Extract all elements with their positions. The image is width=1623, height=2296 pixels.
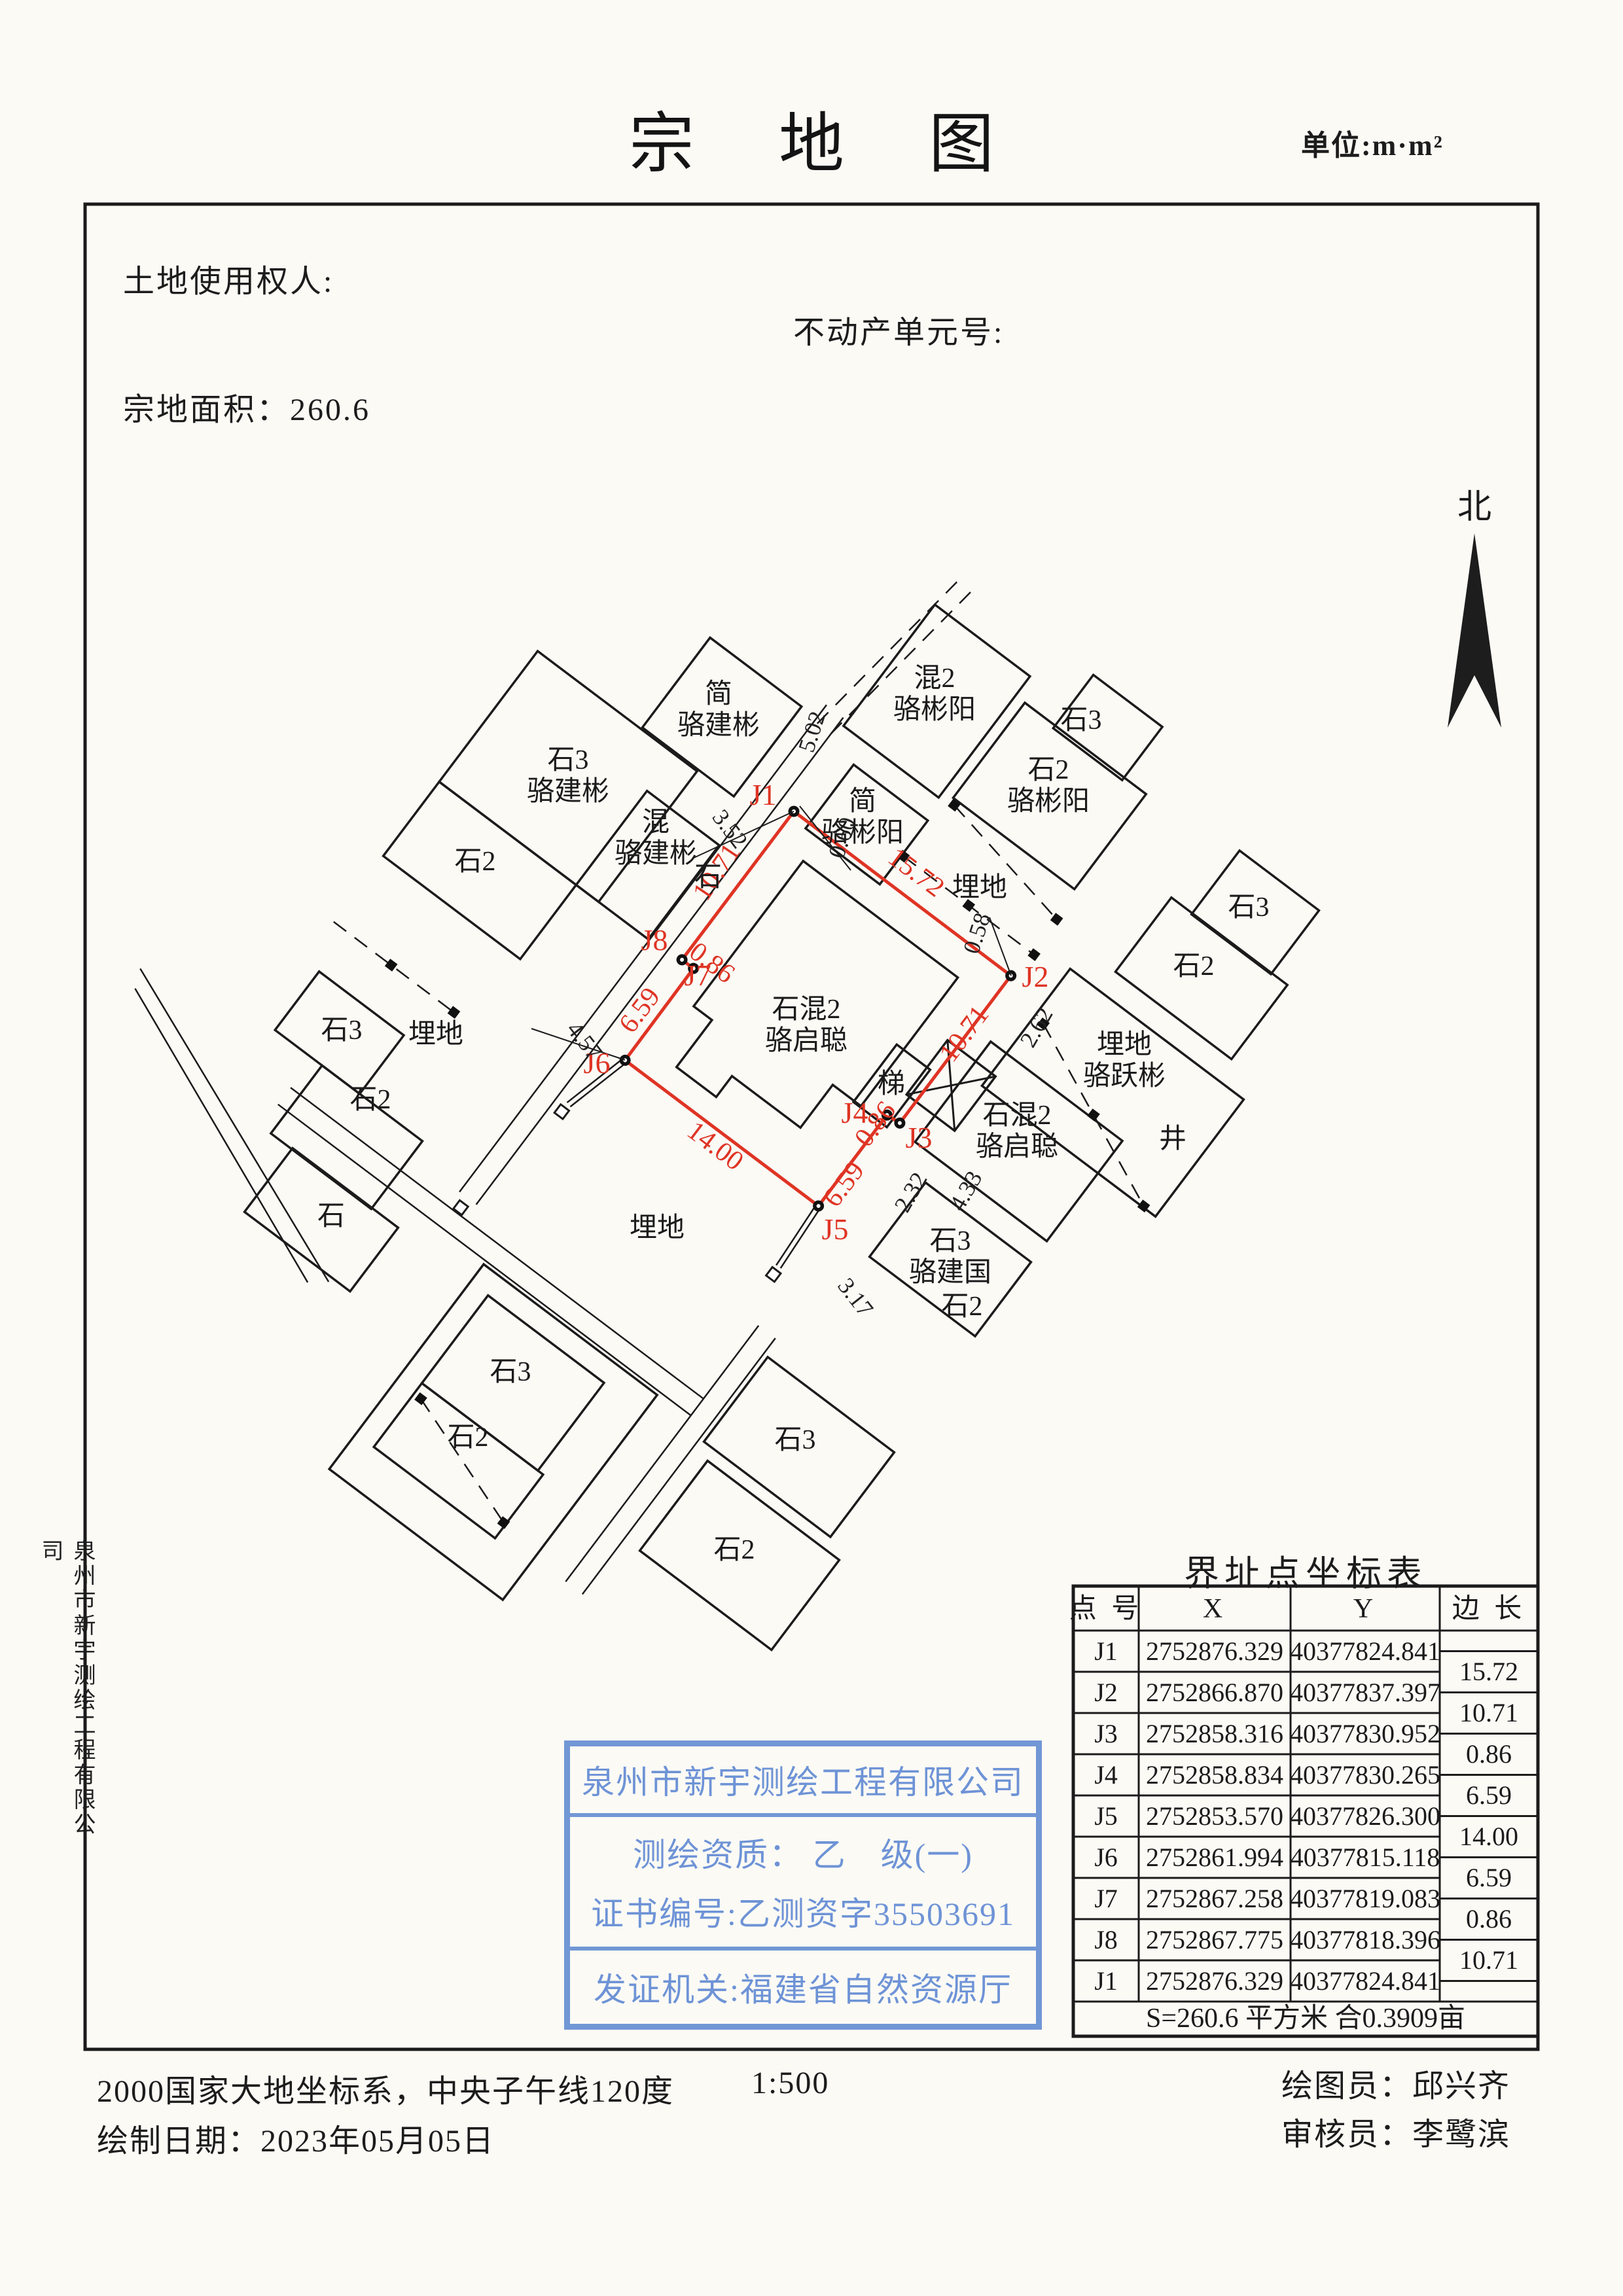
parcel-label: 石2 (454, 847, 495, 877)
table-edge-length: 6.59 (1466, 1863, 1512, 1892)
coordinate-table-title: 界址点坐标表 (1073, 1544, 1538, 1596)
stamp-band-3: 发证机关:福建省自然资源厅 (570, 1951, 1036, 2024)
building-outline (374, 1383, 543, 1538)
parcel-label: 石 (694, 862, 722, 892)
parcel-label: 石3 (490, 1357, 531, 1387)
crs-note: 2000国家大地坐标系，中央子午线120度 (97, 2065, 674, 2111)
stamp-company: 泉州市新宇测绘工程有限公司 (582, 1756, 1024, 1803)
parcel-map-sheet: 宗 地 图 单位:m·m² 土地使用权人: 不动产单元号: 宗地面积：260.6… (0, 0, 1623, 2296)
neighbour-dimension: 5.02 (793, 708, 831, 755)
table-x-value: 2752876.329 (1146, 1966, 1283, 1996)
table-x-value: 2752858.316 (1146, 1719, 1283, 1748)
surveyor-stamp: 泉州市新宇测绘工程有限公司 测绘资质： 乙 级(一) 证书编号:乙测资字3550… (564, 1740, 1042, 2030)
parcel-label: 石混2骆启聪 (765, 995, 847, 1056)
parcel-label: 井 (1159, 1124, 1186, 1154)
table-edge-length: 0.86 (1466, 1904, 1512, 1934)
parcel-label: 石3骆建国 (909, 1226, 991, 1288)
road-line (278, 1104, 691, 1415)
parcel-label: 石3 (1060, 705, 1101, 735)
parcel-label: 石2骆彬阳 (1007, 755, 1090, 817)
boundary-mark (414, 1392, 427, 1405)
parcel-label: 梯 (878, 1069, 905, 1099)
parcel-label: 石2 (447, 1422, 488, 1453)
boundary-mark (497, 1516, 510, 1529)
parcel-edge-length: 15.72 (882, 842, 950, 904)
survey-stone (766, 1267, 781, 1282)
table-y-value: 40377824.841 (1290, 1966, 1440, 1996)
neighbour-dimension: 2.32 (889, 1168, 933, 1217)
table-point-id: J2 (1094, 1678, 1118, 1707)
parcel-label: 石2 (941, 1292, 982, 1322)
parcel-label: 石 (317, 1201, 345, 1231)
parcel-label: 简骆彬阳 (821, 786, 904, 848)
north-arrow-icon (1448, 533, 1501, 728)
spur-line (777, 1207, 824, 1268)
table-y-value: 40377824.841 (1290, 1636, 1440, 1666)
parcel-label: 石2 (1173, 951, 1214, 981)
table-edge-length: 6.59 (1466, 1780, 1512, 1810)
parcel-label: 埋地骆跃彬 (1083, 1030, 1166, 1091)
table-header: 点 号 (1069, 1594, 1143, 1624)
parcel-edge-length: 14.00 (681, 1116, 749, 1177)
stamp-certificate-no: 证书编号:乙测资字35503691 (591, 1888, 1015, 1935)
parcel-label: 埋地 (408, 1019, 463, 1050)
table-x-value: 2752866.870 (1146, 1678, 1283, 1707)
table-x-value: 2752858.834 (1146, 1760, 1283, 1790)
table-header: Y (1353, 1594, 1377, 1624)
table-y-value: 40377830.265 (1290, 1760, 1440, 1790)
map-scale: 1:500 (751, 2065, 829, 2101)
parcel-edge-length: 6.59 (613, 982, 666, 1038)
stamp-band-1: 泉州市新宇测绘工程有限公司 (570, 1746, 1036, 1817)
table-y-value: 40377837.397 (1290, 1678, 1440, 1707)
boundary-mark (1087, 1108, 1100, 1122)
table-header: X (1203, 1594, 1226, 1624)
table-y-value: 40377830.952 (1290, 1719, 1440, 1748)
parcel-label: 石混2骆启聪 (976, 1101, 1058, 1162)
stamp-band-2: 测绘资质： 乙 级(一) 证书编号:乙测资字35503691 (570, 1817, 1036, 1951)
table-point-id: J1 (1094, 1636, 1118, 1666)
table-x-value: 2752867.775 (1146, 1925, 1283, 1954)
stamp-qualification: 测绘资质： 乙 级(一) (633, 1829, 973, 1876)
table-x-value: 2752876.329 (1146, 1636, 1283, 1666)
table-x-value: 2752867.258 (1146, 1884, 1283, 1913)
draw-date: 绘制日期：2023年05月05日 (97, 2115, 495, 2161)
table-edge-length: 10.71 (1459, 1945, 1518, 1975)
table-area-summary: S=260.6 平方米 合0.3909亩 (1146, 2003, 1465, 2034)
neighbour-dimension: 0.58 (958, 910, 996, 957)
boundary-point-label: J1 (750, 778, 777, 811)
drafter: 绘图员：邱兴齐 (1281, 2060, 1510, 2106)
spur-line (772, 1205, 819, 1265)
parcel-label: 混2骆彬阳 (893, 663, 976, 725)
building-outline (982, 969, 1243, 1217)
table-point-id: J5 (1094, 1801, 1118, 1831)
parcel-label: 石3 (774, 1425, 815, 1455)
neighbour-dimension: 3.17 (832, 1273, 878, 1321)
parcel-label: 石2 (713, 1535, 755, 1565)
table-y-value: 40377819.083 (1290, 1884, 1440, 1913)
boundary-point-label: J8 (641, 923, 668, 957)
table-y-value: 40377815.118 (1291, 1843, 1440, 1872)
table-edge-length: 10.71 (1459, 1698, 1518, 1727)
parcel-edge-length: 6.59 (817, 1156, 870, 1212)
table-edge-length: 14.00 (1459, 1822, 1518, 1851)
table-y-value: 40377818.396 (1290, 1925, 1440, 1954)
table-header: 边 长 (1452, 1594, 1526, 1624)
table-y-value: 40377826.300 (1290, 1801, 1440, 1831)
parcel-label: 石3骆建彬 (527, 745, 609, 807)
parcel-label: 埋地 (630, 1213, 685, 1243)
neighbour-dimension: 2.62 (1015, 1003, 1058, 1052)
dashed-boundary (391, 1399, 533, 1523)
boundary-point-label: J5 (822, 1212, 849, 1246)
building-outline (329, 1264, 657, 1600)
parcel-label: 石3 (1228, 892, 1269, 923)
parcel-label: 石3 (321, 1016, 362, 1046)
boundary-point-label: J2 (1022, 960, 1049, 993)
table-point-id: J7 (1094, 1884, 1118, 1913)
parcel-label: 简骆建彬 (677, 679, 760, 741)
table-point-id: J3 (1094, 1719, 1118, 1748)
boundary-mark (448, 1006, 461, 1019)
north-label: 北 (1457, 489, 1491, 526)
table-point-id: J6 (1094, 1843, 1118, 1872)
table-point-id: J1 (1094, 1966, 1118, 1996)
stamp-issuer: 发证机关:福建省自然资源厅 (594, 1964, 1012, 2011)
table-edge-length: 15.72 (1459, 1657, 1518, 1686)
boundary-mark (1050, 913, 1063, 926)
table-x-value: 2752853.570 (1146, 1801, 1283, 1831)
boundary-point-label: J3 (906, 1121, 933, 1154)
table-point-id: J4 (1094, 1760, 1118, 1790)
survey-stone (554, 1104, 569, 1119)
parcel-label: 石2 (349, 1085, 391, 1115)
table-x-value: 2752861.994 (1146, 1843, 1283, 1872)
table-point-id: J8 (1094, 1925, 1118, 1954)
boundary-mark (385, 959, 398, 972)
parcel-label: 埋地 (952, 873, 1007, 903)
reviewer: 审核员：李鹭滨 (1281, 2108, 1510, 2154)
boundary-mark (1027, 948, 1041, 961)
table-edge-length: 0.86 (1466, 1739, 1512, 1769)
